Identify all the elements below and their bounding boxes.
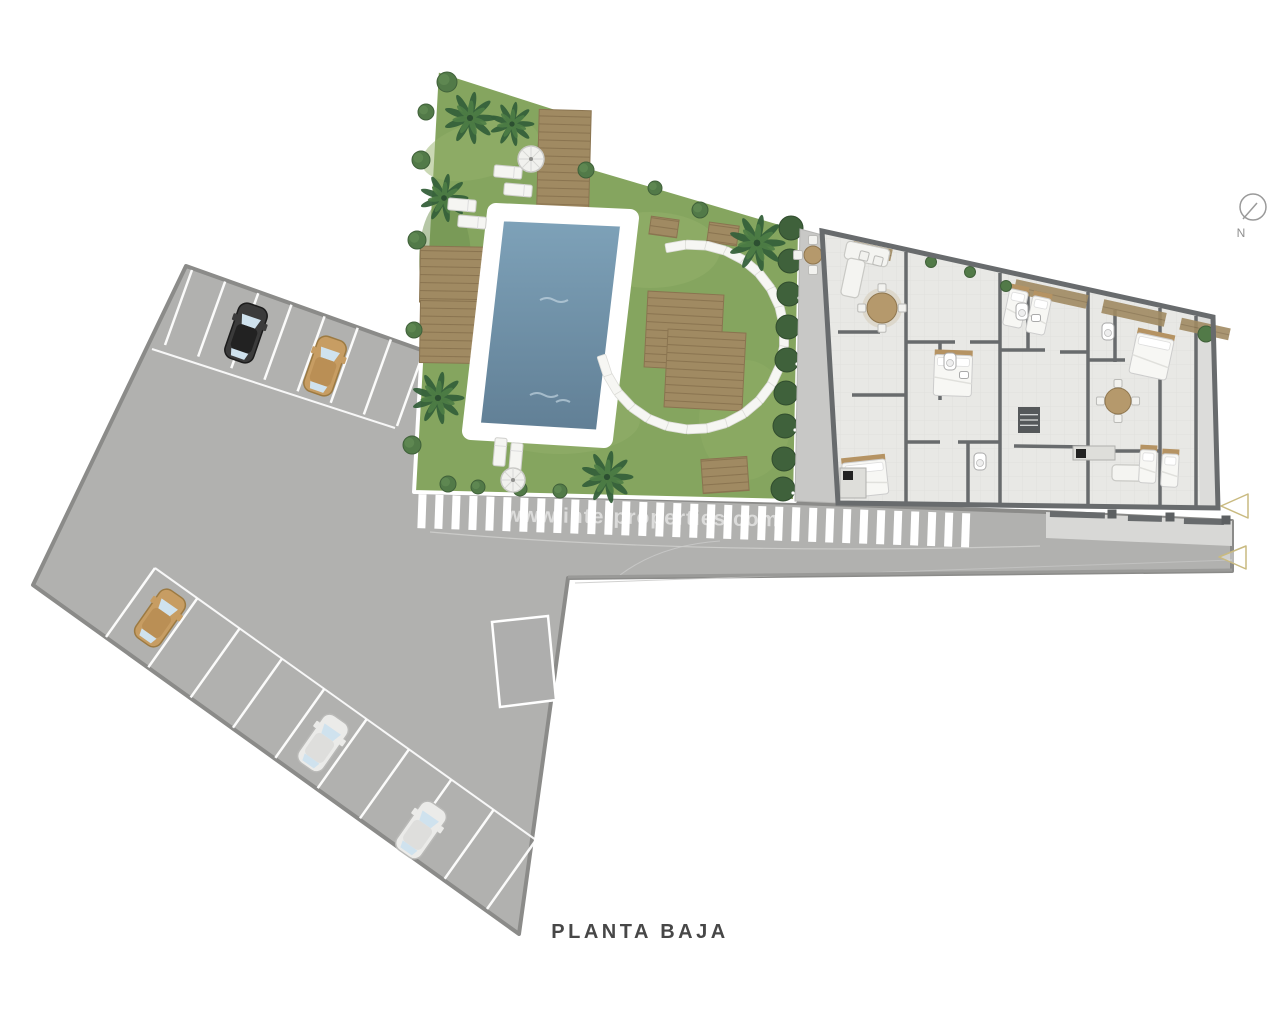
bush-highlight — [693, 204, 702, 213]
compass-needle-icon — [1243, 203, 1257, 219]
parasol-pole — [529, 157, 533, 161]
bush-highlight — [404, 438, 414, 448]
palm-trunk — [435, 395, 441, 401]
dining-chair — [1132, 397, 1140, 405]
bush-highlight — [649, 182, 657, 190]
bush-highlight — [472, 481, 480, 489]
terrace-chair — [873, 256, 884, 267]
north-compass: N — [1237, 194, 1266, 240]
dining-chair — [878, 324, 886, 332]
parasol — [501, 468, 525, 492]
bush-highlight — [407, 324, 416, 333]
crosswalk-stripe — [451, 495, 460, 529]
hedge-bush — [775, 348, 799, 372]
bush-highlight — [441, 478, 450, 487]
bush-highlight — [554, 485, 562, 493]
wood-deck-rect — [649, 216, 679, 238]
north-label: N — [1237, 226, 1246, 240]
crosswalk-stripe — [485, 496, 494, 530]
bush-highlight — [579, 164, 588, 173]
terrace-table — [804, 246, 822, 264]
crosswalk-stripe — [791, 507, 800, 541]
sun-lounger — [458, 215, 487, 229]
bush-highlight — [409, 233, 419, 243]
wood-deck-rect — [664, 329, 746, 411]
palm-trunk — [509, 121, 514, 126]
hedge-bush — [776, 315, 800, 339]
bed — [1161, 449, 1180, 488]
hedge-bush — [774, 381, 798, 405]
dining-chair — [1114, 379, 1122, 387]
crosswalk-stripe — [417, 494, 426, 528]
palm-trunk — [467, 115, 473, 121]
wood-deck-rect — [701, 456, 749, 493]
crosswalk-stripe — [842, 509, 851, 543]
parasol-pole — [511, 478, 515, 482]
hedge-bush — [772, 447, 796, 471]
wood-deck — [701, 456, 749, 493]
site-plan-drawing: N www.interproperties.com PLANTA BAJA — [0, 0, 1280, 1024]
crosswalk-stripe — [859, 510, 868, 544]
sun-lounger — [494, 165, 523, 179]
terrace-chair — [809, 266, 818, 275]
terrace-chair — [794, 251, 803, 260]
palm-trunk — [754, 240, 761, 247]
dining-chair — [1096, 397, 1104, 405]
stepping-stone — [685, 240, 706, 250]
wall-pillar — [1108, 510, 1117, 519]
lounger-rect — [458, 215, 487, 229]
lounger-rect — [493, 438, 507, 467]
terrace-chair — [809, 236, 818, 245]
wood-deck — [419, 300, 478, 363]
dining-chair — [858, 304, 866, 312]
bed-pillow — [1165, 457, 1176, 466]
wood-deck — [664, 329, 746, 411]
lounger-rect — [504, 183, 533, 197]
entrance-arrow-icon — [1221, 494, 1248, 518]
bush-highlight — [419, 106, 428, 115]
sun-lounger — [509, 443, 523, 472]
lounger-rect — [448, 198, 477, 212]
lounger-rect — [494, 165, 523, 179]
stepping-stone — [686, 424, 707, 434]
parasol — [518, 146, 544, 172]
wall-pillar — [1166, 513, 1175, 522]
lounger-rect — [509, 443, 523, 472]
crosswalk-stripe — [434, 495, 443, 529]
watermark: www.interproperties.com — [504, 504, 780, 532]
crosswalk-stripe — [944, 513, 953, 547]
toilet-seat — [1019, 310, 1026, 317]
reserved-parking-space — [492, 616, 556, 707]
boundary-wall-segment — [1184, 518, 1224, 525]
toilet-seat — [947, 360, 954, 367]
terrace-chair — [859, 251, 870, 262]
dining-table — [1105, 388, 1131, 414]
hedge-bush — [777, 282, 801, 306]
sun-lounger — [448, 198, 477, 212]
crosswalk-stripe — [927, 512, 936, 546]
sink — [1032, 315, 1041, 322]
crosswalk-stripe — [808, 508, 817, 542]
dining-chair — [898, 304, 906, 312]
sink — [960, 372, 969, 379]
toilet-seat — [977, 460, 984, 467]
bush-highlight — [413, 153, 423, 163]
hedge-bush — [773, 414, 797, 438]
palm-trunk — [441, 195, 447, 201]
toilet-seat — [1105, 330, 1112, 337]
kitchen-stove — [843, 471, 853, 480]
palm-trunk — [604, 474, 610, 480]
wood-deck-rect — [419, 300, 478, 363]
bush-highlight — [439, 74, 450, 85]
path-light — [791, 491, 794, 494]
crosswalk-stripe — [893, 511, 902, 545]
crosswalk-stripe — [961, 513, 970, 547]
terrace-bush — [965, 267, 976, 278]
crosswalk-stripe — [825, 508, 834, 542]
wood-deck — [649, 216, 679, 238]
wall-pillar — [1222, 516, 1231, 525]
crosswalk-stripe — [468, 496, 477, 530]
crosswalk-stripe — [876, 510, 885, 544]
dining-chair — [878, 284, 886, 292]
sun-lounger — [504, 183, 533, 197]
bed — [1139, 445, 1158, 484]
terrace-bush — [1001, 281, 1012, 292]
kitchen-stove — [1076, 449, 1086, 458]
sun-lounger — [493, 438, 507, 467]
crosswalk-stripe — [910, 511, 919, 545]
floor-plan-page: N www.interproperties.com PLANTA BAJA — [0, 0, 1280, 1024]
boundary-wall-segment — [1128, 515, 1162, 522]
swimming-pool — [471, 212, 630, 439]
dining-chair — [1114, 415, 1122, 423]
bed-pillow — [1143, 453, 1154, 462]
page-title: PLANTA BAJA — [551, 921, 728, 943]
hedge-bush — [771, 477, 795, 501]
dining-table — [867, 293, 897, 323]
